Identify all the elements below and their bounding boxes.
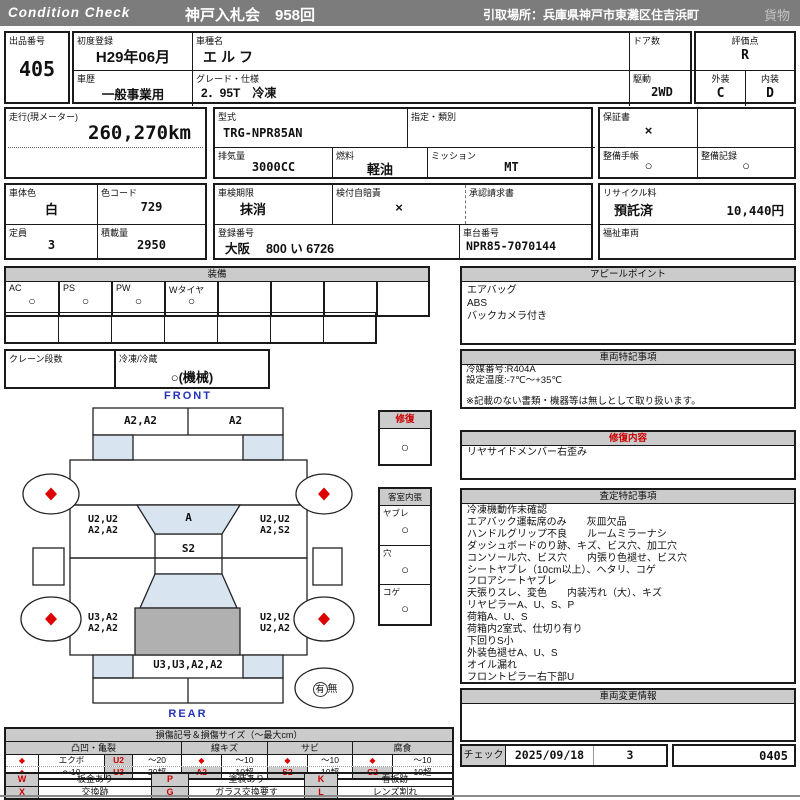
auction-title: 神戸入札会 958回 [185,4,315,25]
payload-value: 2950 [98,238,205,252]
equipment-value: ○ [6,294,58,308]
legend-group-name: サビ [268,742,353,754]
code-desc: 板金あり [39,774,152,786]
damage-left-rear: U3,A2 A2,A2 [68,612,138,634]
repair-flag-value: ○ [380,439,430,455]
body-color-cell: 車体色 白 [6,185,97,224]
warranty-cell: 保証書 × [600,109,697,147]
model-name-value: エルフ [203,47,257,67]
equipment-label: AC [9,283,22,293]
inspection-label: 車検期限 [218,186,254,199]
front-label: FRONT [98,390,278,402]
rear-corner-right-shade [243,655,283,678]
equipment-cell-empty [6,313,59,342]
cabin-header: 客室内張 [380,489,430,506]
equipment-cell-empty [218,282,271,315]
equipment-header: 装備 [4,266,430,282]
mileage-box: 走行(現メーター) 260,270km [4,107,207,179]
info-box-6: リサイクル料 預託済 10,440円 福祉車両 [598,183,796,260]
equipment-cell-ac: AC○ [6,282,59,315]
check-date-cell: 2025/09/18 [506,746,594,765]
cargo-bed-shade [135,608,240,655]
brand-logo: Condition Check [8,5,130,20]
cabin-section: 客室内張 ヤブレ ○ 穴 ○ コゲ ○ [378,487,432,626]
service-record-cell: 整備記録 ○ [697,147,794,177]
service-record-value: ○ [698,158,794,173]
drive-cell: 駆動 2WD [629,70,694,106]
lot-box: 出品番号 405 [4,31,70,104]
code-symbol: K [305,774,338,786]
interior-cell: 内装 D [745,70,794,106]
model-code-label: 型式 [218,110,236,123]
repair-flag-header: 修復 [380,412,430,429]
legend-title: 損傷記号＆損傷サイズ（〜最大cm） [6,729,452,742]
info-box-1: 初度登録 H29年06月 車種名 エルフ ドア数 車歴 一般事業用 グレード・仕… [72,31,692,104]
color-code-value: 729 [98,200,205,214]
repair-detail-section: 修復内容 リヤサイドメンバー右歪み [460,430,796,480]
service-book-cell: 整備手帳 ○ [600,147,697,177]
model-code-value: TRG-NPR85AN [223,126,302,140]
equipment-value: ○ [113,294,164,308]
cabin-cell-hole: 穴 ○ [380,545,430,584]
inspection-value: 抹消 [240,199,266,218]
legend-group-name: 腐食 [353,742,452,754]
rear-window-shade [140,574,237,608]
spare-present-mark: 有 [313,682,328,697]
vehicle-notes-section: 車両特記事項 冷媒番号:R404A 設定温度:-7℃～+35℃ ※記載のない書類… [460,349,796,409]
insurance-label: 検付自賠責 [336,186,381,199]
service-book-value: ○ [600,158,697,173]
history-value: 一般事業用 [74,84,192,103]
welfare-label: 福祉車両 [603,226,639,239]
recycle-status: 預託済 [614,200,653,219]
equipment-section: 装備 AC○ PS○ PW○ Wタイヤ○ [4,266,430,317]
legend-diamond-icon: ◆ [353,755,393,766]
first-reg-cell: 初度登録 H29年06月 [74,33,192,70]
change-info-body [462,704,794,706]
mileage-divider [8,147,203,148]
exterior-value: C [696,86,745,101]
info-box-4: 車体色 白 色コード 729 定員 3 積載量 2950 [4,183,207,260]
condition-check-sheet: Condition Check 神戸入札会 958回 引取場所：兵庫県神戸市東灘… [0,0,800,800]
lot-number: 405 [6,57,68,81]
legend-row-1: ◆ エクボ U2 〜20 ◆ 〜10 ◆ 〜10 ◆ 〜10 [6,755,452,766]
info-box-2: 型式 TRG-NPR85AN 指定・類別 排気量 3000CC 燃料 軽油 ミッ… [213,107,593,179]
damage-front-bumper-right: A2 [188,415,283,426]
score-value: R [696,48,794,63]
score-label: 評価点 [696,34,794,47]
legend-group-name: 凸凹・亀裂 [6,742,182,754]
mileage-label: 走行(現メーター) [9,110,78,123]
assessment-body: 冷凍機動作未確認 エアバック運転席のみ 灰皿欠品 ハンドルグリップ不良 ルームミ… [462,504,794,685]
legend-group-headers: 凸凹・亀裂 線キズ サビ 腐食 [6,742,452,755]
damage-right-rear: U2,U2 U2,A2 [240,612,310,634]
damage-right-front: U2,U2 A2,S2 [240,514,310,536]
exterior-cell: 外装 C [696,70,745,106]
model-name-label: 車種名 [196,34,223,47]
grade-cell: グレード・仕様 2．95T 冷凍 [192,70,629,106]
repair-flag-box: 修復 ○ [378,410,432,466]
crane-label: クレーン段数 [9,352,63,365]
legend-text: 〜10 [308,755,353,766]
repair-detail-header: 修復内容 [462,432,794,446]
legend-group-name: 線キズ [182,742,268,754]
equipment-cell-empty [324,313,375,342]
inspection-cell: 車検期限 抹消 [215,185,332,224]
color-code-label: 色コード [101,186,137,199]
class-cell: 指定・類別 [407,109,595,147]
vehicle-notes-header: 車両特記事項 [462,351,794,365]
model-name-cell: 車種名 エルフ [192,33,629,70]
first-reg-value: H29年06月 [74,46,192,67]
equipment-row-2 [4,312,377,344]
damage-roof: S2 [155,543,222,554]
cabin-value: ○ [380,601,430,616]
legend-text: エクボ [39,755,105,766]
insurance-cell: 検付自賠責 × [332,185,465,224]
recycle-fee: 10,440円 [726,200,784,219]
equipment-label: PW [116,283,131,293]
cabin-label: ヤブレ [383,507,409,519]
seats-cell: 定員 3 [6,224,97,258]
code-symbol: W [6,774,39,786]
welfare-cell: 福祉車両 [600,224,794,258]
insurance-value: × [333,200,465,215]
interior-value: D [746,86,794,101]
equipment-cell-empty [271,282,324,315]
legend-diamond-icon: ◆ [6,755,39,766]
front-corner-left-shade [93,435,133,460]
equipment-cell-wtire: Wタイヤ○ [165,282,218,315]
vehicle-notes-body: 冷媒番号:R404A 設定温度:-7℃～+35℃ ※記載のない書類・機器等は無し… [462,365,794,408]
exterior-label: 外装 [696,72,745,85]
check-count-cell: 3 [594,746,666,765]
transmission-cell: ミッション MT [427,147,595,177]
body-color-label: 車体色 [9,186,36,199]
bottom-divider [0,795,800,797]
equipment-value: ○ [166,294,217,308]
recycle-cell: リサイクル料 預託済 10,440円 [600,185,794,224]
code-desc: 塗装あり [189,774,305,786]
chassis-no-label: 車台番号 [463,226,499,239]
front-corner-right-shade [243,435,283,460]
history-cell: 車歴 一般事業用 [74,70,192,106]
displacement-cell: 排気量 3000CC [215,147,332,177]
legend-diamond-icon: ◆ [268,755,308,766]
check-label-cell: チェック [462,746,506,765]
cabin-cell-burn: コゲ ○ [380,584,430,624]
equipment-cell-empty [377,282,428,315]
check-row: チェック 2025/09/18 3 [460,744,668,767]
category-label: 貨物 [764,5,790,24]
lot-label: 出品番号 [9,34,45,47]
code-desc: 看板跡 [338,774,452,786]
hood-band [70,460,307,505]
equipment-cell-empty [59,313,112,342]
drive-value: 2WD [630,85,694,99]
drive-label: 駆動 [633,72,651,85]
doors-cell: ドア数 [629,33,694,70]
payload-cell: 積載量 2950 [97,224,205,258]
side-step-right [313,548,342,585]
equipment-cell-empty [324,282,377,315]
fuel-cell: 燃料 軽油 [332,147,427,177]
model-code-cell: 型式 TRG-NPR85AN [215,109,407,147]
approval-label: 承認請求書 [469,186,514,199]
warranty-value: × [600,123,697,138]
damage-front-bumper-left: A2,A2 [93,415,188,426]
header-bar: Condition Check 神戸入札会 958回 引取場所：兵庫県神戸市東灘… [0,0,800,26]
cabin-label: コゲ [383,586,400,598]
cabin-value: ○ [380,562,430,577]
seats-value: 3 [6,238,97,252]
change-info-section: 車両変更情報 [460,688,796,742]
codes-row-1: W 板金あり P 塗装あり K 看板跡 [6,774,452,787]
color-code-cell: 色コード 729 [97,185,205,224]
equipment-label: PS [63,283,75,293]
diagram-shapes [2,388,374,730]
mileage-value: 260,270km [88,122,191,144]
assessment-section: 査定特記事項 冷凍機動作未確認 エアバック運転席のみ 灰皿欠品 ハンドルグリップ… [460,488,796,684]
displacement-value: 3000CC [215,160,332,174]
cabin-label: 穴 [383,547,392,559]
spare-tire-indicator: 有無 [296,680,354,697]
class-label: 指定・類別 [411,110,456,123]
repair-detail-body: リヤサイドメンバー右歪み [462,446,794,460]
legend-text: 〜10 [222,755,268,766]
reefer-box: 冷凍/冷蔵 ○(機械) [114,349,270,389]
doors-label: ドア数 [633,34,660,47]
side-step-left [33,548,64,585]
score-cell: 評価点 R [696,33,794,70]
equipment-cell-empty [112,313,165,342]
fuel-value: 軽油 [333,159,427,178]
cabin-value: ○ [380,522,430,537]
recycle-label: リサイクル料 [603,186,657,199]
pickup-location: 引取場所：兵庫県神戸市東灘区住吉浜町 [483,6,699,23]
equipment-cell-empty [165,313,218,342]
equipment-cell-pw: PW○ [112,282,165,315]
grade-value: 2．95T 冷凍 [201,84,276,101]
legend-diamond-icon: ◆ [182,755,222,766]
legend-code: U2 [105,755,133,766]
cabin-cell-tear: ヤブレ ○ [380,506,430,545]
damage-left-front: U2,U2 A2,A2 [68,514,138,536]
info-box-5: 車検期限 抹消 検付自賠責 × 承認請求書 登録番号 大阪 800 い 6726… [213,183,593,260]
legend-text: 〜20 [133,755,182,766]
approval-cell: 承認請求書 [465,185,591,224]
chassis-no-value: NPR85-7070144 [466,239,556,253]
warranty-blank-cell [697,109,794,147]
damage-rear-panel: U3,U3,A2,A2 [127,660,249,671]
check-code-box: 0405 [672,744,796,767]
equipment-cell-empty [218,313,271,342]
code-symbol: P [152,774,189,786]
score-box: 評価点 R 外装 C 内装 D [694,31,796,104]
appeal-section: アピールポイント エアバッグ ABS バックカメラ付き [460,266,796,345]
equipment-value: ○ [60,294,111,308]
change-info-header: 車両変更情報 [462,690,794,704]
damage-windshield: A [137,512,240,523]
equipment-cell-ps: PS○ [59,282,112,315]
warranty-label: 保証書 [603,110,630,123]
body-color-value: 白 [6,199,97,218]
reg-no-cell: 登録番号 大阪 800 い 6726 [215,224,459,258]
transmission-value: MT [428,160,595,174]
interior-label: 内装 [746,72,794,85]
spare-absent-mark: 無 [328,684,338,695]
reg-no-value: 大阪 800 い 6726 [225,238,334,257]
crane-box: クレーン段数 [4,349,116,389]
equipment-cell-empty [271,313,324,342]
info-box-3: 保証書 × 整備手帳 ○ 整備記録 ○ [598,107,796,179]
rear-label: REAR [98,708,278,720]
legend-text: 〜10 [393,755,452,766]
check-code-value: 0405 [759,749,788,763]
appeal-body: エアバッグ ABS バックカメラ付き [462,283,794,324]
assessment-header: 査定特記事項 [462,490,794,504]
chassis-no-cell: 車台番号 NPR85-7070144 [459,224,591,258]
reefer-value: ○(機械) [116,367,268,386]
appeal-header: アピールポイント [462,268,794,282]
reefer-label: 冷凍/冷蔵 [119,352,158,365]
vehicle-damage-diagram: FRONT A2,A2 A2 U2,U2 A2,A2 A S2 U2,U2 A2… [2,388,374,730]
